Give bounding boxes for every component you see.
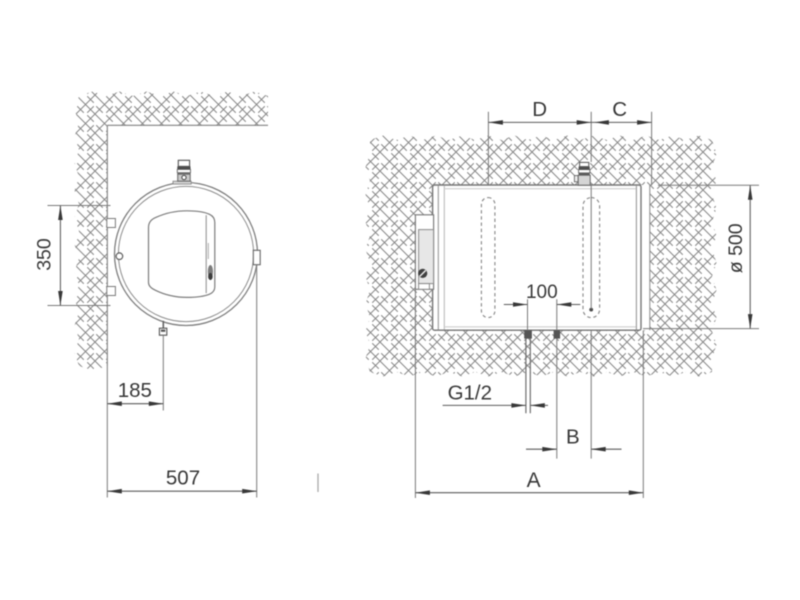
svg-text:G1/2: G1/2 — [448, 381, 492, 404]
svg-text:507: 507 — [166, 466, 200, 489]
svg-text:100: 100 — [526, 282, 558, 303]
svg-text:ø 500: ø 500 — [725, 223, 747, 273]
svg-text:B: B — [566, 426, 580, 449]
svg-text:D: D — [532, 98, 547, 121]
svg-text:A: A — [527, 469, 541, 492]
svg-text:350: 350 — [33, 238, 55, 271]
svg-text:185: 185 — [118, 379, 152, 402]
svg-text:C: C — [612, 98, 627, 121]
